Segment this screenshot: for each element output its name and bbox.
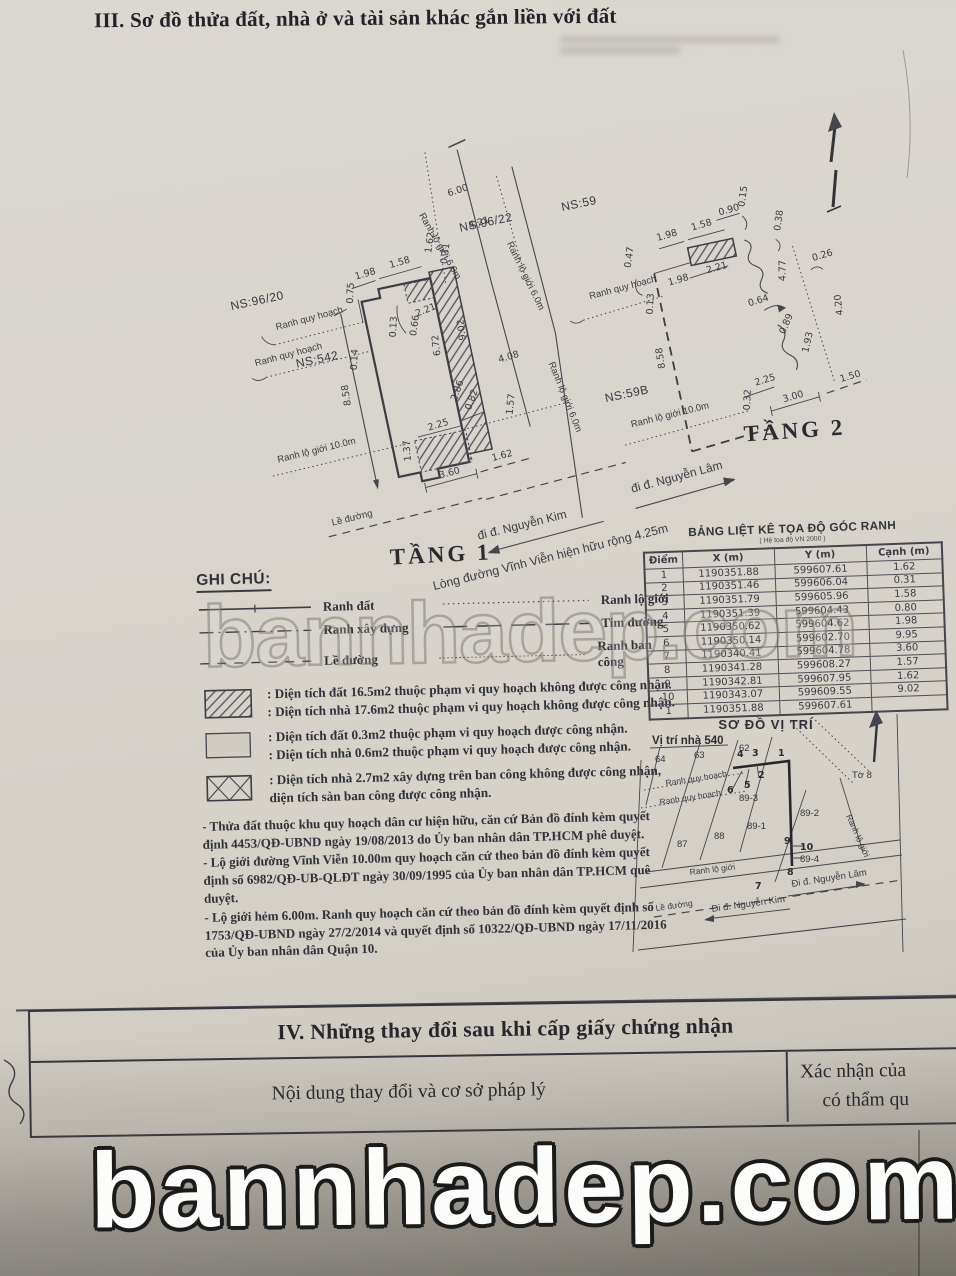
parcel-number: 63	[694, 750, 705, 761]
dim-label: 0.64	[747, 293, 770, 310]
point-label: 7	[755, 881, 762, 892]
tang1-boundary-lines	[213, 121, 628, 545]
legal-note: - Lộ giới hẻm 6.00m. Ranh quy hoạch căn …	[204, 897, 675, 962]
legend-area-item: : Diện tích đất 0.3m2 thuộc phạm vi quy …	[204, 718, 681, 766]
dim-label: 0.89	[777, 312, 795, 336]
dim-label: 0.15	[736, 185, 750, 207]
dim-label: 8.58	[340, 384, 354, 407]
parcel-number: 88	[714, 831, 725, 842]
parcel-number: 89-3	[739, 793, 758, 804]
boundary-label: Ranh lộ giới	[844, 813, 872, 859]
dim-label: 1.62	[491, 448, 514, 464]
page-edge-curve	[903, 50, 910, 178]
dim-label: 2.25	[753, 372, 776, 389]
point-label: 3	[752, 748, 759, 759]
legend-area-item: : Diện tích nhà 2.7m2 xây dựng trên ban …	[205, 761, 682, 809]
dim-label: 2.25	[427, 417, 450, 434]
dim-label: 0.26	[811, 247, 834, 264]
street-label: Đi đ. Nguyễn Kim	[711, 894, 786, 915]
site-map-title: SƠ ĐỒ VỊ TRÍ	[718, 717, 813, 732]
dim-label: 0.66	[408, 314, 422, 336]
parcel-label: NS:96/20	[229, 288, 285, 313]
sheet-label: Tờ 8	[852, 770, 872, 781]
parcel-number: 89-1	[747, 821, 766, 832]
dim-label: 3.00	[782, 389, 805, 405]
hatch-swatch	[203, 686, 256, 721]
map-north-arrow-icon	[869, 710, 883, 762]
hatched-patch-bottom	[415, 430, 473, 472]
cell	[871, 695, 947, 712]
dim-label: 4.20	[832, 294, 845, 316]
floor2-title: TẦNG 2	[743, 414, 846, 447]
point-label: 5	[744, 780, 751, 791]
parcel-label: NS:59	[560, 193, 598, 214]
parcel-label: NS:59B	[604, 382, 650, 405]
handwritten-mark	[0, 1042, 60, 1152]
dim-label: 0.14	[349, 349, 361, 371]
boundary-label: Lề đường	[331, 508, 374, 529]
point-label: 1	[778, 748, 785, 759]
parcel-number: 62	[739, 743, 750, 754]
dim-label: 1.58	[690, 217, 713, 233]
dim-label: 0.32	[742, 389, 754, 411]
dim-label: 4.08	[497, 349, 520, 365]
point-label: 8	[787, 867, 794, 878]
crosshatch-swatch	[205, 771, 258, 804]
dim-label: 0.47	[623, 246, 637, 268]
street-label: đi đ. Nguyễn Kim	[476, 506, 568, 543]
boundary-label: Ranh lộ giới 6.0m	[546, 360, 584, 434]
dim-label: 0.13	[388, 316, 400, 338]
watermark-bottom: bannhadep.com	[89, 1119, 956, 1252]
dim-label: 8.58	[654, 347, 668, 370]
boundary-label: Ranh quy hoạch	[275, 305, 345, 334]
boundary-label: Ranh lộ giới 10.0m	[276, 436, 357, 466]
cell: 1	[649, 704, 687, 719]
dim-label: 1.62	[423, 231, 437, 253]
tang2-plan: Ranh lộ giới 6.0m Ranh lộ giới 6.0m NS:5…	[488, 104, 882, 522]
section4-table: IV. Những thay đổi sau khi cấp giấy chứn…	[28, 996, 956, 1138]
site-map-plot-outline	[731, 761, 803, 866]
cell: 10	[649, 690, 687, 705]
boundary-label: Ranh lộ giới	[689, 861, 736, 877]
street-label: đi đ. Nguyễn Lâm	[629, 457, 724, 496]
dim-label: 0.38	[772, 209, 786, 231]
watermark-middle: bannhadep.com	[202, 576, 858, 687]
parcel-number: 89-4	[800, 854, 819, 865]
dim-label: 1.93	[800, 331, 815, 354]
plain-swatch	[204, 728, 257, 761]
scanned-land-certificate-page: { "page": { "title": "III. Sơ đồ thửa đấ…	[0, 0, 956, 1276]
dim-label: 1.58	[388, 255, 411, 271]
tang1-building	[359, 267, 496, 486]
cell: 1190351.88	[687, 701, 779, 718]
col-header: Điểm	[644, 551, 683, 569]
dim-label: 1.37	[401, 440, 413, 462]
point-label: 10	[800, 842, 814, 853]
dim-label: 1.57	[504, 393, 517, 415]
dim-label: 1.98	[354, 266, 377, 282]
page-title: III. Sơ đồ thửa đất, nhà ở và tài sản kh…	[94, 4, 617, 34]
section4-confirm-line: có thẩm qu	[800, 1084, 956, 1116]
cell: 599607.61	[779, 697, 871, 714]
boundary-label: Ranh lộ giới 10.0m	[630, 400, 711, 430]
point-label: 6	[727, 785, 734, 796]
section4-col-confirm: Xác nhận của có thẩm qu	[786, 1049, 956, 1122]
dim-label: 4.77	[778, 260, 789, 281]
section4-confirm-line: Xác nhận của	[800, 1055, 956, 1087]
north-arrow-icon	[827, 112, 842, 212]
dim-label: 1.98	[667, 272, 690, 288]
dim-label: 0.13	[645, 293, 657, 315]
section4-col-content: Nội dung thay đổi và cơ sở pháp lý	[31, 1052, 787, 1133]
point-label: 2	[758, 770, 765, 781]
parcel-number: 89-2	[800, 808, 819, 819]
dim-label: 9.02	[455, 319, 468, 341]
tang2-boundary-lines	[495, 110, 851, 520]
dim-label: 6.00	[446, 182, 470, 199]
dim-label: 0.75	[345, 282, 357, 304]
legal-notes: - Thửa đất thuộc khu quy hoạch dân cư hi…	[202, 806, 675, 962]
point-label: 9	[784, 836, 791, 847]
dim-label: 1.98	[655, 228, 678, 244]
dim-label: 6.72	[430, 334, 443, 356]
